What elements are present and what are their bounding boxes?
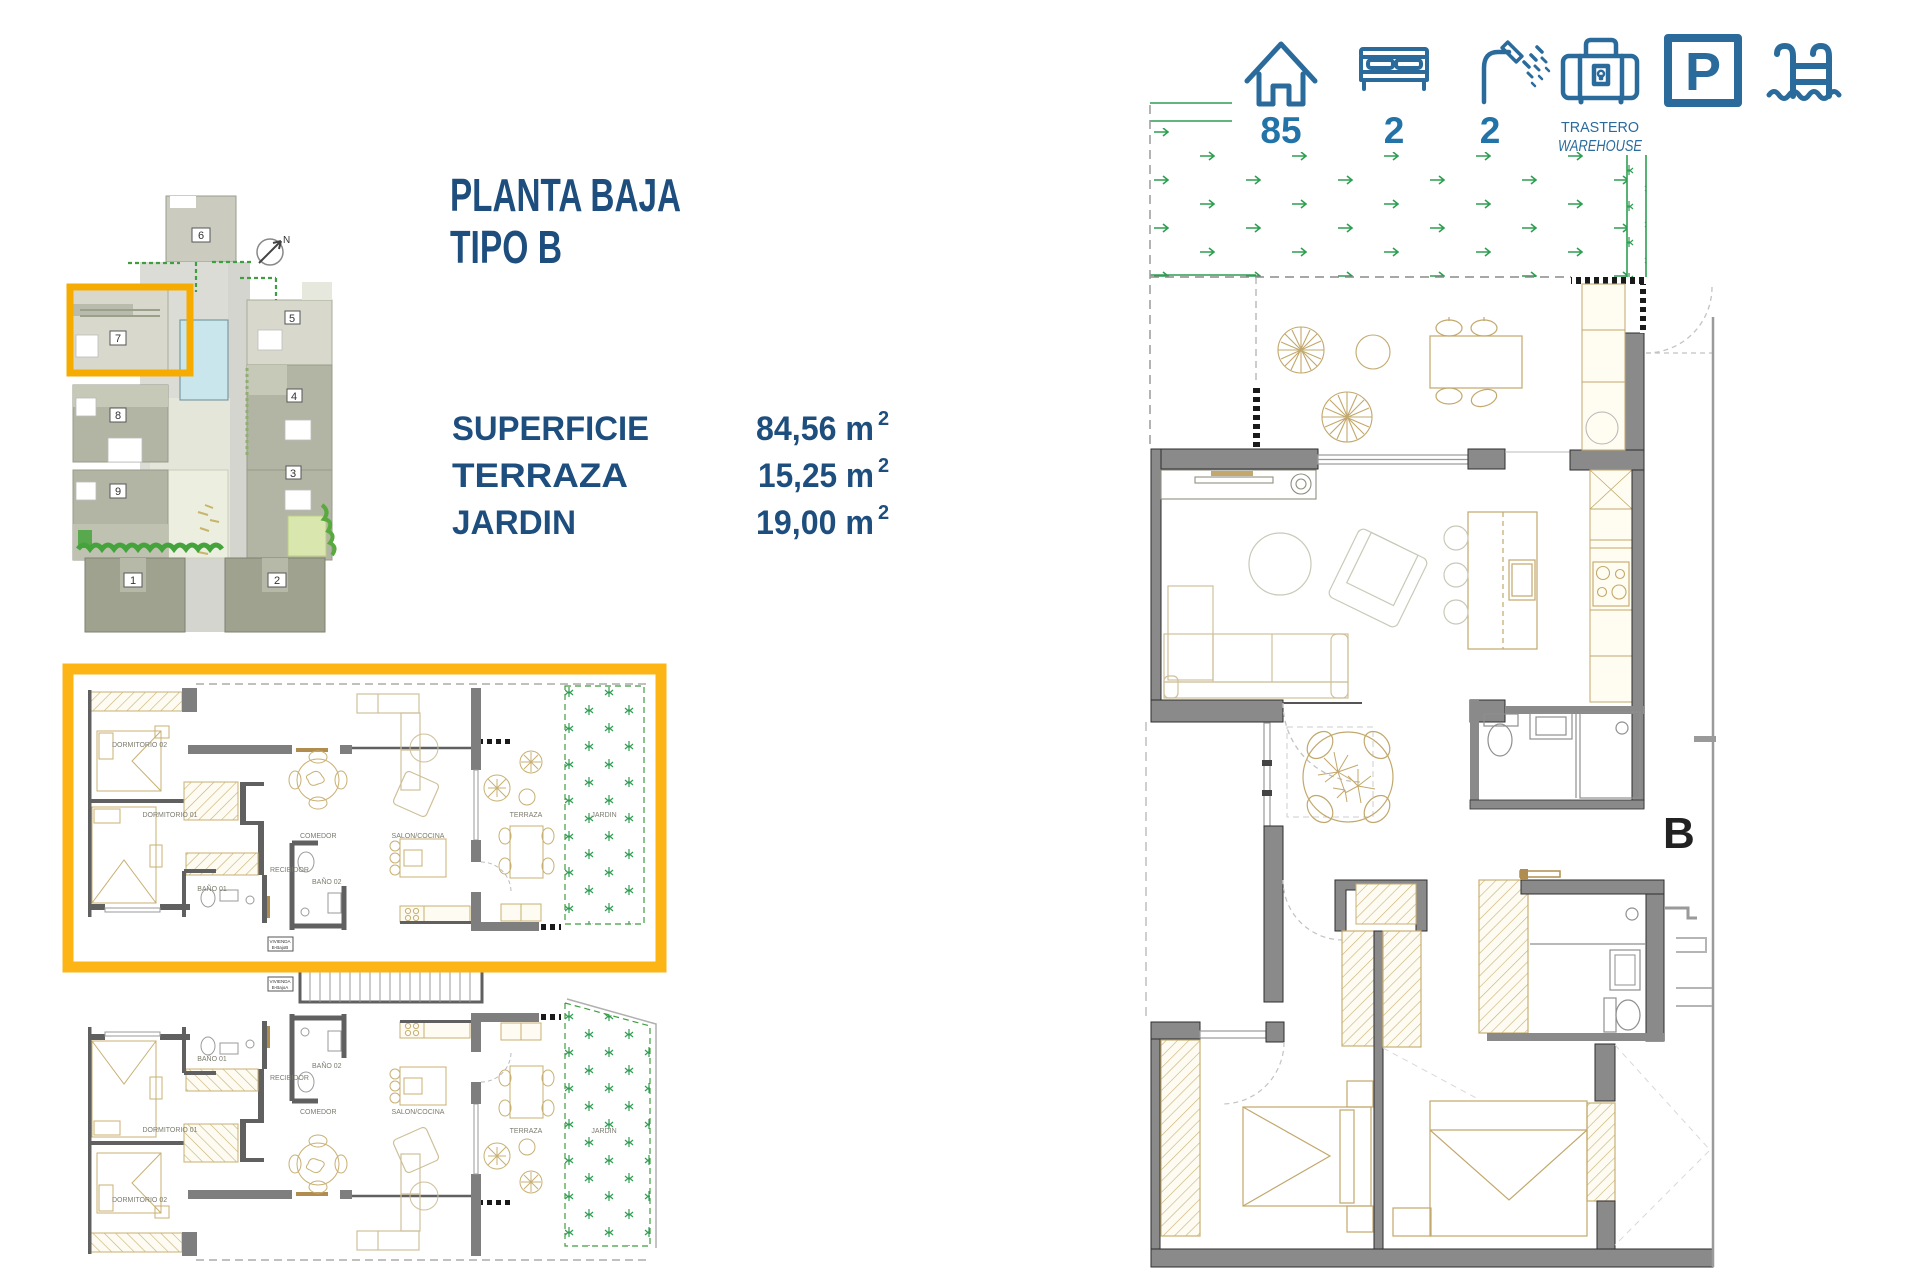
svg-text:2: 2 [1384, 110, 1405, 151]
svg-text:JARDIN: JARDIN [452, 504, 576, 542]
svg-text:7: 7 [115, 333, 121, 345]
svg-text:BAÑO 02: BAÑO 02 [312, 1061, 342, 1070]
svg-text:2: 2 [878, 408, 889, 430]
svg-text:RECIBIDOR: RECIBIDOR [270, 1075, 309, 1082]
svg-text:TERRAZA: TERRAZA [510, 812, 543, 819]
svg-text:SALON/COCINA: SALON/COCINA [392, 833, 445, 840]
svg-text:84,56 m: 84,56 m [756, 410, 874, 448]
svg-text:6: 6 [198, 230, 204, 242]
svg-text:JARDIN: JARDIN [591, 1128, 616, 1135]
svg-text:PLANTA BAJA: PLANTA BAJA [450, 169, 681, 221]
svg-text:TRASTERO: TRASTERO [1561, 119, 1639, 136]
svg-text:3: 3 [290, 468, 296, 480]
svg-text:JARDIN: JARDIN [591, 812, 616, 819]
svg-text:COMEDOR: COMEDOR [300, 1109, 337, 1116]
svg-text:8: 8 [115, 410, 121, 422]
svg-text:2: 2 [1480, 110, 1501, 151]
svg-text:B-BajoA: B-BajoA [272, 985, 289, 990]
svg-text:4: 4 [291, 391, 297, 403]
svg-text:DORMITORIO 02: DORMITORIO 02 [112, 1197, 167, 1204]
svg-text:COMEDOR: COMEDOR [300, 833, 337, 840]
svg-text:N: N [283, 235, 290, 246]
svg-text:9: 9 [115, 486, 121, 498]
svg-text:85: 85 [1260, 110, 1301, 151]
svg-text:2: 2 [274, 575, 280, 587]
svg-text:2: 2 [878, 502, 889, 524]
svg-text:19,00 m: 19,00 m [756, 504, 874, 542]
svg-text:P: P [1685, 42, 1721, 102]
svg-text:SUPERFICIE: SUPERFICIE [452, 410, 649, 448]
svg-text:SALON/COCINA: SALON/COCINA [392, 1109, 445, 1116]
svg-text:TERRAZA: TERRAZA [510, 1128, 543, 1135]
svg-text:TIPO B: TIPO B [450, 221, 562, 273]
svg-text:B: B [1663, 809, 1695, 858]
svg-text:B-BajoB: B-BajoB [272, 945, 289, 950]
svg-text:2: 2 [878, 455, 889, 477]
svg-text:DORMITORIO 01: DORMITORIO 01 [142, 812, 197, 819]
svg-text:15,25 m: 15,25 m [758, 457, 874, 495]
svg-text:VIVIENDA: VIVIENDA [269, 939, 290, 944]
svg-text:DORMITORIO 01: DORMITORIO 01 [142, 1127, 197, 1134]
svg-text:BAÑO 02: BAÑO 02 [312, 877, 342, 886]
svg-text:1: 1 [130, 575, 136, 587]
svg-text:BAÑO 01: BAÑO 01 [197, 884, 227, 893]
svg-text:BAÑO 01: BAÑO 01 [197, 1054, 227, 1063]
svg-text:TERRAZA: TERRAZA [452, 457, 628, 495]
svg-text:DORMITORIO 02: DORMITORIO 02 [112, 742, 167, 749]
svg-text:RECIBIDOR: RECIBIDOR [270, 867, 309, 874]
svg-text:VIVIENDA: VIVIENDA [269, 979, 290, 984]
svg-text:5: 5 [289, 313, 295, 325]
